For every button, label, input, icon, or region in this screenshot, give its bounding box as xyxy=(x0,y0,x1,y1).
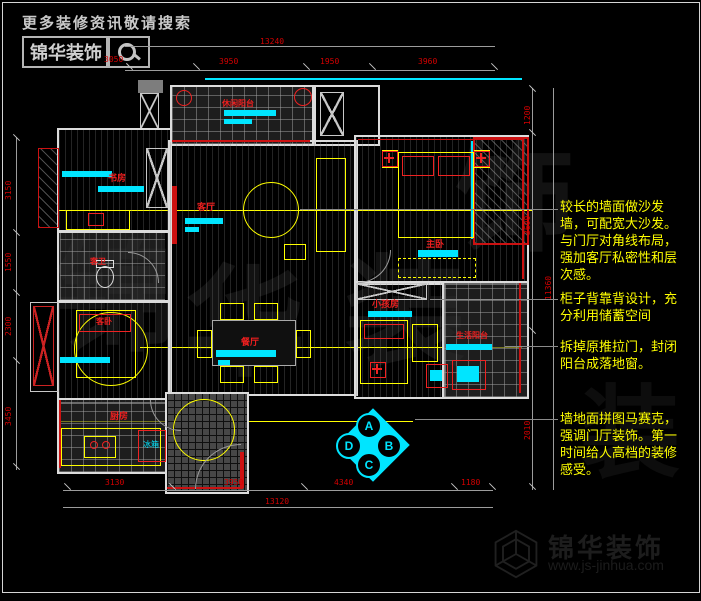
pillow-kids xyxy=(364,324,404,339)
footer-logo: 锦华装饰 www.js-jinhua.com xyxy=(490,528,690,583)
leader-line xyxy=(415,419,558,420)
dim-label: 1950 xyxy=(320,58,339,66)
cyan-highlight-bar xyxy=(185,227,199,232)
plant-icon xyxy=(294,88,312,106)
cad-floorplan-page: 锦 华 装 饰 装 更多装修资讯敬请搜索 锦华装饰 xyxy=(0,0,701,601)
compass: A B C D xyxy=(335,407,411,483)
dining-chair xyxy=(197,330,212,358)
compass-letter: C xyxy=(365,458,374,472)
dim-line-bottom-seg xyxy=(63,490,493,491)
brand-name: 锦华装饰 xyxy=(30,39,102,65)
brand-search-box[interactable]: 锦华装饰 xyxy=(22,36,110,68)
dining-chair xyxy=(220,366,244,383)
shaft-hatch xyxy=(320,92,344,136)
sofa-couch-icon xyxy=(316,158,346,252)
utility-sink-basin xyxy=(430,370,442,381)
search-icon-handle xyxy=(132,52,141,60)
cyan-highlight-bar xyxy=(224,110,276,116)
footer-url: www.js-jinhua.com xyxy=(548,557,664,573)
bay-window-left-hatch xyxy=(33,306,54,386)
room-label-kitchen: 厨房 xyxy=(110,412,128,421)
compass-letter: B xyxy=(385,439,394,453)
dim-label: 3050 xyxy=(104,56,123,64)
leader-line xyxy=(300,209,558,210)
compass-letter-c: C xyxy=(356,452,382,478)
wardrobe-study xyxy=(146,148,168,208)
dresser-master xyxy=(398,258,476,278)
red-wall-accent xyxy=(172,140,310,142)
dim-label: 3950 xyxy=(224,479,243,487)
leader-line xyxy=(505,346,558,347)
dim-label: 3150 xyxy=(5,181,13,200)
duct-box xyxy=(138,80,163,93)
pillow-master xyxy=(438,156,470,176)
dining-chair xyxy=(296,330,311,358)
leader-line xyxy=(430,299,558,300)
faucet-icon xyxy=(90,441,98,449)
sofa-round-icon xyxy=(243,182,299,238)
header-tagline: 更多装修资讯敬请搜索 xyxy=(22,12,192,33)
dim-line-left xyxy=(16,137,17,470)
dim-label: 13240 xyxy=(260,38,284,46)
cyan-highlight-bar xyxy=(60,357,110,363)
dining-chair xyxy=(254,303,278,320)
bay-window-study xyxy=(38,148,59,228)
coffee-table xyxy=(284,244,306,260)
room-label-living: 客厅 xyxy=(197,203,215,212)
cyan-highlight-bar xyxy=(224,119,252,124)
compass-letter-a: A xyxy=(356,413,382,439)
fridge-label: 冰箱 xyxy=(143,441,159,449)
red-tv-wall xyxy=(172,186,177,244)
room-label-guest-bath: 客卫 xyxy=(90,258,106,266)
lamp-cross-icon xyxy=(474,151,490,167)
red-wall-accent xyxy=(358,139,523,140)
cyan-highlight-bar xyxy=(418,250,458,257)
chair-study xyxy=(88,213,104,226)
dim-label: 1200 xyxy=(524,106,532,125)
dining-chair xyxy=(220,303,244,320)
fridge-box: 冰箱 xyxy=(138,430,166,462)
duct-hatch xyxy=(140,93,159,129)
dim-label: 3960 xyxy=(418,58,437,66)
compass-letter-d: D xyxy=(336,433,362,459)
dim-line-right-seg xyxy=(532,88,533,490)
room-label-service-balcony: 生活阳台 xyxy=(456,332,488,340)
cyan-highlight-bar xyxy=(185,218,223,224)
annotation-balcony-door: 拆掉原推拉门，封闭阳台成落地窗。 xyxy=(560,338,678,372)
cyan-highlight-bar xyxy=(218,360,230,365)
dim-line-top-total xyxy=(125,46,495,47)
wardrobe-kids xyxy=(357,283,427,300)
cyan-highlight-bar xyxy=(446,344,492,350)
dim-line-right-total xyxy=(553,88,554,490)
compass-letter-b: B xyxy=(376,433,402,459)
room-label-master: 主卧 xyxy=(426,240,444,249)
dim-line-top-seg xyxy=(125,70,495,71)
dim-label: 3450 xyxy=(5,407,13,426)
cyan-highlight-bar xyxy=(368,311,412,317)
kitchen-sink-icon xyxy=(84,436,116,458)
annotation-cabinets: 柜子背靠背设计，充分利用储蓄空间 xyxy=(560,290,678,324)
annotation-sofa-wall: 较长的墙面做沙发墙，可配宽大沙发。与门厅对角线布局，强加客厅私密性和层次感。 xyxy=(560,198,678,283)
room-label-kids: 小孩房 xyxy=(372,300,399,309)
dim-label: 3600 xyxy=(524,216,532,235)
dim-label: 1550 xyxy=(5,253,13,272)
cube-logo-icon xyxy=(490,528,542,580)
room-label-dining: 餐厅 xyxy=(241,338,259,347)
cyan-highlight-bar xyxy=(216,350,276,357)
cyan-highlight-bar xyxy=(98,186,144,192)
dim-label: 2300 xyxy=(5,317,13,336)
lamp-cross-icon xyxy=(382,151,398,167)
lamp-cross-icon xyxy=(370,362,386,378)
dining-chair xyxy=(254,366,278,383)
dim-label: 1180 xyxy=(461,479,480,487)
pillow-master xyxy=(402,156,434,176)
cyan-highlight-bar xyxy=(62,171,112,177)
wall-bath-bed xyxy=(57,300,168,303)
compass-letter: D xyxy=(345,439,354,453)
toilet-icon xyxy=(96,266,114,288)
faucet-icon xyxy=(102,441,110,449)
dim-label: 3950 xyxy=(219,58,238,66)
dim-label: 13120 xyxy=(265,498,289,506)
room-label-balcony-top: 休闲阳台 xyxy=(222,100,254,108)
dim-label: 11360 xyxy=(545,276,553,300)
plant-icon xyxy=(176,90,192,106)
room-label-guest-bed: 客卧 xyxy=(96,318,112,326)
dim-label: 2010 xyxy=(524,421,532,440)
desk-kids xyxy=(412,324,438,362)
annotation-mosaic: 墙地面拼图马赛克，强调门厅装饰。第一时间给人高档的装修感受。 xyxy=(560,410,678,478)
dim-label: 3130 xyxy=(105,479,124,487)
washer-drum xyxy=(457,366,479,382)
compass-letter: A xyxy=(365,419,374,433)
room-label-study: 书房 xyxy=(108,174,126,183)
window-line-top xyxy=(205,78,522,80)
dim-line-bottom-total xyxy=(63,507,493,508)
